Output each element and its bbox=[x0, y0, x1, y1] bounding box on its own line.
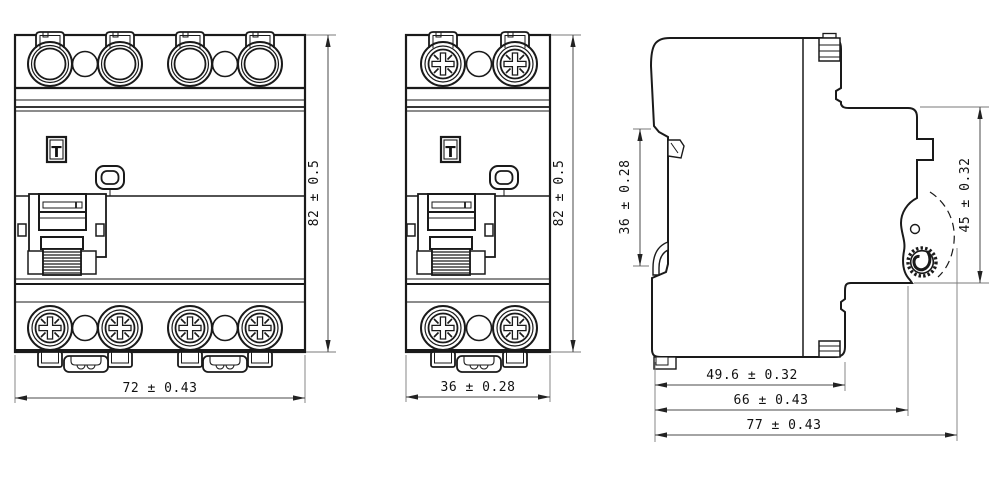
dim-label-height-2pole: 82 ± 0.5 bbox=[552, 160, 567, 227]
din-rail-hook-top bbox=[668, 140, 684, 158]
toggle-handle-2pole bbox=[407, 194, 495, 275]
dim-label-side-depth3: 77 ± 0.43 bbox=[747, 418, 822, 433]
test-button-label-4pole: T bbox=[51, 143, 62, 161]
dim-label-side-depth1: 49.6 ± 0.32 bbox=[706, 368, 798, 383]
dim-label-side-front-height: 45 ± 0.32 bbox=[958, 158, 973, 233]
drawing-canvas: T 82 ± 0.5 72 ± 0.43 bbox=[0, 0, 1000, 481]
lever-pivot-pin bbox=[911, 225, 920, 234]
side-view bbox=[651, 34, 954, 370]
toggle-handle-4pole bbox=[18, 194, 106, 275]
test-button-4pole: T bbox=[47, 137, 66, 162]
dim-label-width-2pole: 36 ± 0.28 bbox=[441, 380, 516, 395]
dimension-height-2pole: 82 ± 0.5 bbox=[551, 35, 581, 352]
front-view-2pole: T bbox=[406, 32, 550, 372]
dim-label-height-4pole: 82 ± 0.5 bbox=[307, 160, 322, 227]
side-toggle-lever bbox=[908, 248, 936, 276]
test-button-label-2pole: T bbox=[445, 143, 456, 161]
dimension-height-4pole: 82 ± 0.5 bbox=[306, 35, 336, 352]
front-view-4pole: T bbox=[15, 32, 305, 372]
dim-label-side-depth2: 66 ± 0.43 bbox=[734, 393, 809, 408]
dim-label-width-4pole: 72 ± 0.43 bbox=[123, 381, 198, 396]
dimension-side-rail-height: 36 ± 0.28 bbox=[618, 129, 651, 266]
test-button-2pole: T bbox=[441, 137, 460, 162]
dim-label-side-rail-height: 36 ± 0.28 bbox=[618, 160, 633, 235]
technical-drawing: T 82 ± 0.5 72 ± 0.43 bbox=[0, 0, 1000, 481]
bottom-mount-clip bbox=[654, 357, 676, 369]
